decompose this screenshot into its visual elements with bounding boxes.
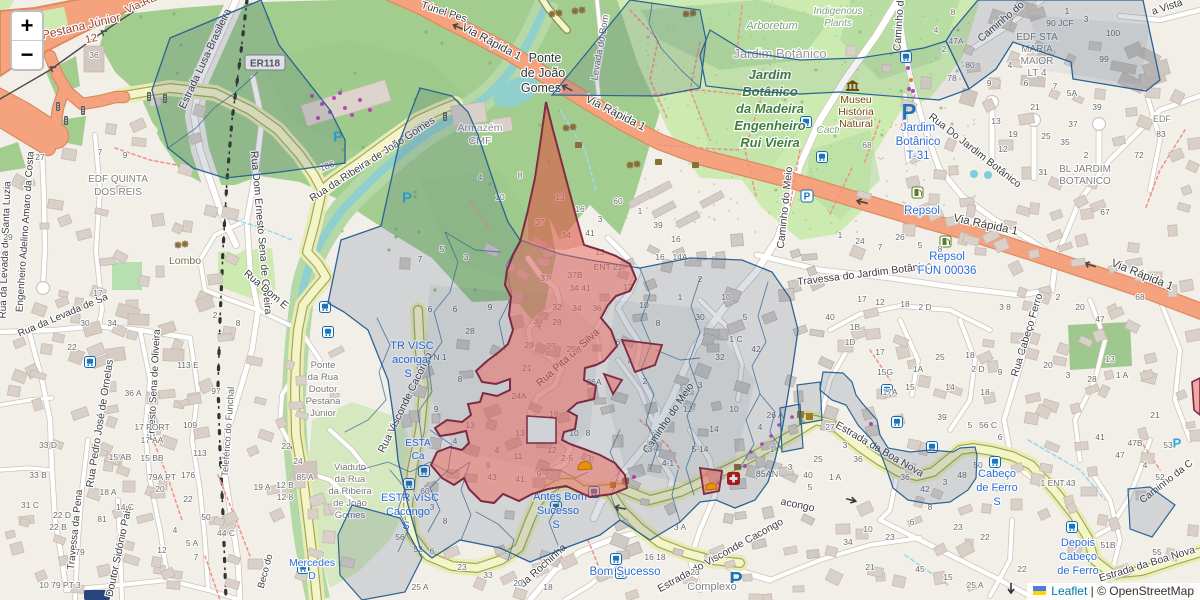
svg-text:85 A: 85 A <box>296 472 313 482</box>
svg-text:40: 40 <box>803 470 813 480</box>
svg-text:17A: 17A <box>882 387 897 397</box>
svg-text:P: P <box>902 100 917 125</box>
svg-text:1: 1 <box>1020 347 1025 357</box>
svg-text:6: 6 <box>998 432 1003 442</box>
svg-text:22: 22 <box>281 441 291 451</box>
svg-text:Museu: Museu <box>840 94 872 106</box>
svg-text:21: 21 <box>1150 410 1160 420</box>
svg-text:33: 33 <box>483 570 493 580</box>
svg-text:da Ribeira: da Ribeira <box>328 486 372 497</box>
svg-text:24: 24 <box>855 236 865 246</box>
svg-text:7: 7 <box>878 242 883 252</box>
svg-text:14: 14 <box>945 382 955 392</box>
svg-text:8: 8 <box>236 318 241 328</box>
svg-text:19: 19 <box>1008 129 1018 139</box>
svg-text:39: 39 <box>937 412 947 422</box>
svg-text:22: 22 <box>183 494 193 504</box>
svg-text:2 D: 2 D <box>918 302 931 312</box>
svg-text:História: História <box>838 106 874 118</box>
svg-text:68: 68 <box>1135 292 1145 302</box>
svg-text:3 8: 3 8 <box>999 302 1011 312</box>
svg-text:31: 31 <box>1038 167 1048 177</box>
svg-text:26: 26 <box>895 232 905 242</box>
svg-text:17: 17 <box>875 347 885 357</box>
svg-text:de João: de João <box>521 66 566 80</box>
svg-text:25 A: 25 A <box>966 580 983 590</box>
svg-text:97: 97 <box>211 386 221 396</box>
svg-text:BL JARDIM: BL JARDIM <box>1059 164 1111 175</box>
svg-text:109: 109 <box>183 420 197 430</box>
svg-text:18 A: 18 A <box>99 487 116 497</box>
svg-text:9: 9 <box>123 150 128 160</box>
svg-text:14 C: 14 C <box>116 502 134 512</box>
svg-text:19 A: 19 A <box>253 482 270 492</box>
svg-text:21: 21 <box>865 562 875 572</box>
svg-text:3: 3 <box>843 440 848 450</box>
svg-text:da Madeira: da Madeira <box>736 101 804 116</box>
svg-text:2: 2 <box>1056 292 1061 302</box>
svg-text:13: 13 <box>991 116 1001 126</box>
svg-text:25 A: 25 A <box>411 582 428 592</box>
svg-text:P: P <box>1173 436 1182 451</box>
svg-text:16: 16 <box>655 252 665 262</box>
svg-text:5 A: 5 A <box>186 538 199 548</box>
svg-text:9: 9 <box>987 78 992 88</box>
svg-text:13: 13 <box>1105 354 1115 364</box>
svg-text:S: S <box>993 496 1000 508</box>
svg-text:Complexo: Complexo <box>687 581 737 593</box>
svg-text:27: 27 <box>35 152 45 162</box>
svg-text:Cabeço: Cabeço <box>978 468 1016 480</box>
svg-text:da Rua: da Rua <box>308 372 339 383</box>
svg-text:Indigenous: Indigenous <box>814 6 863 17</box>
svg-text:P: P <box>804 192 811 203</box>
svg-text:113: 113 <box>193 448 207 458</box>
svg-text:T-31: T-31 <box>906 150 929 162</box>
svg-text:81: 81 <box>97 514 107 524</box>
svg-text:7: 7 <box>98 147 103 157</box>
svg-text:24: 24 <box>293 456 303 466</box>
svg-text:D: D <box>308 570 316 582</box>
svg-text:Mercedes: Mercedes <box>289 557 335 569</box>
svg-text:53: 53 <box>1163 440 1173 450</box>
svg-text:1: 1 <box>638 206 643 216</box>
svg-text:3: 3 <box>788 462 793 472</box>
svg-text:40: 40 <box>825 312 835 322</box>
svg-text:Viaduto: Viaduto <box>334 462 366 473</box>
svg-text:36 A: 36 A <box>124 388 141 398</box>
svg-text:4: 4 <box>1143 460 1148 470</box>
svg-text:8: 8 <box>951 7 956 17</box>
svg-text:2: 2 <box>1084 150 1089 160</box>
svg-text:16: 16 <box>575 204 585 214</box>
svg-text:12: 12 <box>157 545 167 555</box>
svg-text:22 B: 22 B <box>49 522 67 532</box>
svg-text:36: 36 <box>853 454 863 464</box>
svg-text:47: 47 <box>1095 314 1105 324</box>
svg-text:12 8: 12 8 <box>277 492 294 502</box>
svg-text:Cacti: Cacti <box>817 125 841 136</box>
svg-text:23: 23 <box>953 522 963 532</box>
svg-text:17 PORT: 17 PORT <box>134 422 169 432</box>
svg-text:79: 79 <box>75 547 85 557</box>
svg-text:17 AA: 17 AA <box>141 435 164 445</box>
svg-text:17: 17 <box>93 288 103 298</box>
svg-text:Pestana: Pestana <box>306 396 342 407</box>
svg-text:17: 17 <box>857 294 867 304</box>
svg-text:25: 25 <box>813 454 823 464</box>
svg-text:22: 22 <box>1017 564 1027 574</box>
svg-text:1B: 1B <box>850 322 861 332</box>
svg-text:37: 37 <box>1068 119 1078 129</box>
svg-text:27: 27 <box>825 422 835 432</box>
svg-text:8: 8 <box>518 170 523 180</box>
svg-text:15: 15 <box>905 382 915 392</box>
svg-text:20: 20 <box>1043 360 1053 370</box>
svg-text:25: 25 <box>1041 131 1051 141</box>
svg-text:83: 83 <box>1156 129 1166 139</box>
svg-text:33 B: 33 B <box>29 470 47 480</box>
svg-text:Ponte: Ponte <box>529 51 562 65</box>
svg-text:1D: 1D <box>845 337 856 347</box>
svg-text:1 ENT.43: 1 ENT.43 <box>1041 478 1076 488</box>
svg-text:Depois: Depois <box>1061 537 1096 549</box>
svg-text:Doutor: Doutor <box>309 384 338 395</box>
svg-text:15G: 15G <box>877 367 893 377</box>
svg-text:15: 15 <box>943 572 953 582</box>
svg-text:Natural: Natural <box>839 118 873 130</box>
svg-text:34: 34 <box>107 318 117 328</box>
svg-text:1A: 1A <box>913 364 924 374</box>
svg-text:2: 2 <box>213 310 218 320</box>
svg-text:20: 20 <box>155 484 165 494</box>
svg-text:18: 18 <box>980 387 990 397</box>
svg-text:44 C: 44 C <box>217 528 235 538</box>
svg-text:50: 50 <box>201 512 211 522</box>
svg-text:5: 5 <box>968 420 973 430</box>
svg-text:21: 21 <box>1030 102 1040 112</box>
svg-text:6: 6 <box>910 517 915 527</box>
svg-text:16 18: 16 18 <box>644 552 666 562</box>
svg-text:DOS REIS: DOS REIS <box>94 187 142 198</box>
svg-text:BOTANICO: BOTANICO <box>1059 176 1111 187</box>
svg-text:15 BB: 15 BB <box>140 453 163 463</box>
svg-text:31 C: 31 C <box>21 500 39 510</box>
svg-text:8: 8 <box>938 244 943 254</box>
svg-text:5A: 5A <box>1067 88 1078 98</box>
svg-text:56 C: 56 C <box>979 420 997 430</box>
svg-text:4: 4 <box>173 525 178 535</box>
svg-text:Plants: Plants <box>824 18 852 29</box>
svg-text:EDF: EDF <box>1153 114 1172 124</box>
svg-text:16: 16 <box>671 234 681 244</box>
svg-text:51B: 51B <box>1100 540 1115 550</box>
svg-text:36: 36 <box>89 50 99 60</box>
svg-text:Arboretum: Arboretum <box>745 20 797 32</box>
svg-text:Repsol: Repsol <box>904 205 940 217</box>
svg-text:EDF QUINTA: EDF QUINTA <box>88 174 148 185</box>
svg-text:3: 3 <box>598 214 603 224</box>
svg-text:55: 55 <box>1152 547 1162 557</box>
svg-text:de Ferro: de Ferro <box>976 482 1018 494</box>
svg-text:22: 22 <box>980 532 990 542</box>
svg-text:2 D: 2 D <box>971 364 984 374</box>
svg-text:5: 5 <box>918 240 923 250</box>
svg-text:9: 9 <box>998 367 1003 377</box>
svg-text:22 D: 22 D <box>53 510 71 520</box>
svg-text:12: 12 <box>875 297 885 307</box>
svg-text:67: 67 <box>1100 207 1110 217</box>
svg-text:22: 22 <box>67 342 77 352</box>
svg-text:Bom Sucesso: Bom Sucesso <box>590 566 661 578</box>
svg-text:60: 60 <box>613 196 623 206</box>
svg-text:10: 10 <box>863 524 873 534</box>
svg-text:da Rua: da Rua <box>335 474 366 485</box>
svg-text:1 A: 1 A <box>1116 370 1129 380</box>
svg-text:3: 3 <box>1066 370 1071 380</box>
svg-text:39: 39 <box>653 220 663 230</box>
svg-text:Lombo: Lombo <box>169 255 201 267</box>
svg-text:18: 18 <box>543 582 553 592</box>
svg-text:Jardim: Jardim <box>901 122 936 134</box>
svg-text:23: 23 <box>457 562 467 572</box>
svg-text:Repsol: Repsol <box>929 251 965 263</box>
svg-text:Júnior: Júnior <box>310 408 336 419</box>
svg-text:25: 25 <box>935 352 945 362</box>
svg-text:12: 12 <box>998 144 1008 154</box>
svg-text:52: 52 <box>1155 472 1165 482</box>
svg-text:15 AB: 15 AB <box>109 452 132 462</box>
svg-text:20: 20 <box>513 578 523 588</box>
svg-text:23: 23 <box>690 567 700 577</box>
svg-text:FUN 00036: FUN 00036 <box>918 265 977 277</box>
svg-text:1 A: 1 A <box>829 472 842 482</box>
svg-text:Botânico: Botânico <box>896 136 941 148</box>
svg-text:7: 7 <box>1053 81 1058 91</box>
svg-text:1: 1 <box>838 230 843 240</box>
svg-text:20: 20 <box>1075 302 1085 312</box>
svg-text:Ponte: Ponte <box>311 360 336 371</box>
svg-text:47B: 47B <box>1127 438 1142 448</box>
svg-text:7: 7 <box>194 552 199 562</box>
svg-text:4: 4 <box>1008 60 1013 70</box>
svg-text:39: 39 <box>1092 102 1102 112</box>
svg-text:72: 72 <box>1134 150 1144 160</box>
svg-text:33 D: 33 D <box>39 440 57 450</box>
svg-text:18: 18 <box>900 299 910 309</box>
svg-text:4: 4 <box>934 25 939 35</box>
svg-text:Engenheiro: Engenheiro <box>734 118 806 133</box>
svg-text:176: 176 <box>181 470 195 480</box>
svg-text:68: 68 <box>862 140 872 150</box>
svg-text:113 E: 113 E <box>177 360 199 370</box>
svg-text:41: 41 <box>1095 432 1105 442</box>
svg-text:Rui Vieira: Rui Vieira <box>740 135 799 150</box>
svg-text:47: 47 <box>1115 450 1125 460</box>
svg-text:35: 35 <box>1060 137 1070 147</box>
svg-text:Cabeço: Cabeço <box>1059 551 1097 563</box>
svg-text:30: 30 <box>80 318 90 328</box>
svg-text:28: 28 <box>1087 374 1097 384</box>
svg-text:5: 5 <box>808 482 813 492</box>
svg-text:45: 45 <box>915 564 925 574</box>
svg-text:79A PT: 79A PT <box>148 472 176 482</box>
svg-text:18: 18 <box>965 350 975 360</box>
svg-text:41: 41 <box>585 228 595 238</box>
svg-text:6: 6 <box>1024 78 1029 88</box>
svg-text:34: 34 <box>843 537 853 547</box>
svg-text:12 B: 12 B <box>276 480 294 490</box>
svg-text:de Ferro: de Ferro <box>1057 565 1099 577</box>
svg-text:10 79 PT 3: 10 79 PT 3 <box>39 580 81 590</box>
svg-text:23: 23 <box>885 532 895 542</box>
svg-text:29: 29 <box>3 232 13 242</box>
